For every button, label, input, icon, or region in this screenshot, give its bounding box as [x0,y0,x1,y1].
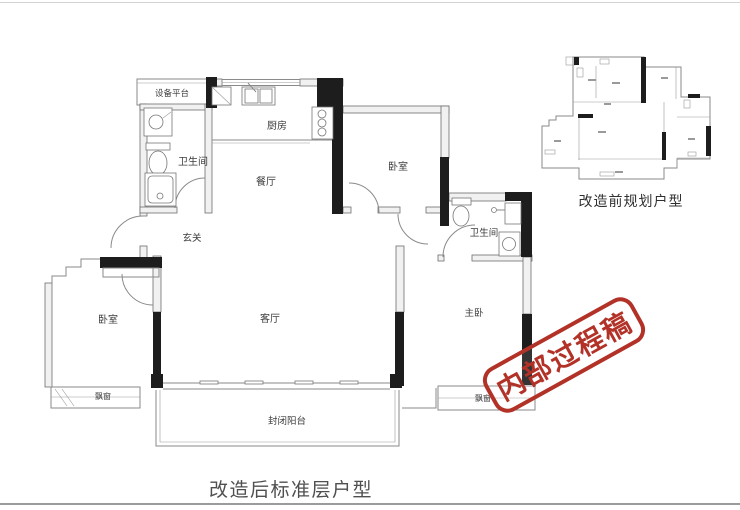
door-arc-entry [111,216,143,248]
room-label-living-room: 客厅 [260,312,280,325]
toilet-fixture-left-bath [146,143,170,175]
room-label-bathroom-left: 卫生间 [178,155,208,168]
kitchen-sink-fixture [242,83,275,105]
caption-after-renovation: 改造后标准层户型 [0,475,582,502]
toilet-fixture-right-bath [452,198,471,226]
floor-plan-mini [542,57,711,179]
sink-fixture-left-bath [144,108,172,136]
stove-fixture [312,107,333,139]
caption-before-renovation: 改造前规划户型 [540,191,722,211]
room-label-kitchen: 厨房 [267,119,287,132]
room-label-hallway: 玄关 [182,232,202,244]
floor-plan-page: 设备平台 卫生间 厨房 餐厅 玄关 卧室 卧室 卫生间 客厅 主卧 飘窗 飘窗 … [0,0,740,510]
door-arc-bedroom-left [122,274,153,305]
sink-fixture-right-bath [492,203,522,224]
mini-plan-text-marks [554,77,695,173]
floor-plan-main: 设备平台 卫生间 厨房 餐厅 玄关 卧室 卧室 卫生间 客厅 主卧 飘窗 飘窗 … [0,0,740,510]
fridge-fixture [212,87,231,105]
door-arc-master-suite [398,214,428,244]
room-label-bedroom-middle: 卧室 [388,160,408,173]
door-arc-bathroom-left [175,178,205,208]
walls-group [45,79,532,387]
washer-fixture-right-bath [499,232,520,256]
bathtub-fixture-left-bath [145,173,176,206]
thin-lines-group [51,140,535,446]
room-label-balcony: 封闭阳台 [268,415,306,427]
room-label-bedroom-left: 卧室 [98,313,118,326]
room-label-equipment-platform: 设备平台 [155,88,189,98]
room-label-dining-room: 餐厅 [256,175,276,188]
room-label-bathroom-right: 卫生间 [470,227,499,239]
door-arc-bedroom-middle [349,183,379,213]
room-label-bay-window-left: 飘窗 [95,391,111,401]
room-label-master-bedroom: 主卧 [464,307,484,319]
